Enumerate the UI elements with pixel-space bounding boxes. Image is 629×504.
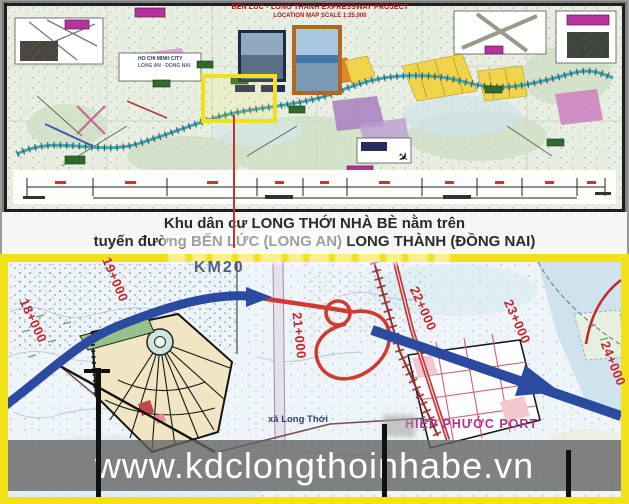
- caption-strip: Khu dân cư LONG THỚI NHÀ BÈ nằm trên tuy…: [2, 212, 627, 254]
- caption-watermark-fade: [162, 231, 347, 249]
- map-title: BEN LUC - LONG THANH EXPRESSWAY PROJECT …: [205, 4, 435, 20]
- location-map: ✈: [4, 3, 625, 212]
- watermark-blob: [434, 250, 450, 265]
- watermark-blob: [309, 250, 329, 265]
- leader-line: [233, 115, 235, 248]
- port-label: HIỆP PHƯỚC PORT: [405, 417, 538, 431]
- map-title-line1: BEN LUC - LONG THANH EXPRESSWAY PROJECT: [205, 4, 435, 13]
- survey-bar-right: [566, 450, 571, 497]
- city-label: HO CHI MINH CITY LONG AN - DONG NAI: [138, 56, 208, 70]
- survey-bar-left-cap: [84, 369, 110, 373]
- watermark-blob: [288, 250, 303, 265]
- port-watermark-smudge: [383, 415, 415, 437]
- caption-line1: Khu dân cư LONG THỚI NHÀ BÈ nằm trên: [2, 215, 627, 232]
- map-title-line2: LOCATION MAP SCALE 1:25.000: [205, 13, 435, 21]
- survey-bar-middle: [382, 424, 387, 497]
- km20-marker: KM20: [194, 259, 245, 277]
- page: ✈: [0, 0, 629, 504]
- watermark-blob: [168, 250, 186, 265]
- location-map-graphic: ✈: [7, 6, 622, 209]
- commune-label: xã Long Thới: [268, 414, 328, 425]
- watermark-blob: [408, 250, 428, 265]
- city-sublabel: LONG AN - DONG NAI: [138, 63, 208, 70]
- survey-bar-left: [96, 368, 101, 497]
- watermark-blob: [260, 250, 282, 265]
- watermark-blob: [335, 250, 352, 265]
- watermark-blob: [358, 250, 380, 265]
- watermark-blob: [386, 250, 402, 265]
